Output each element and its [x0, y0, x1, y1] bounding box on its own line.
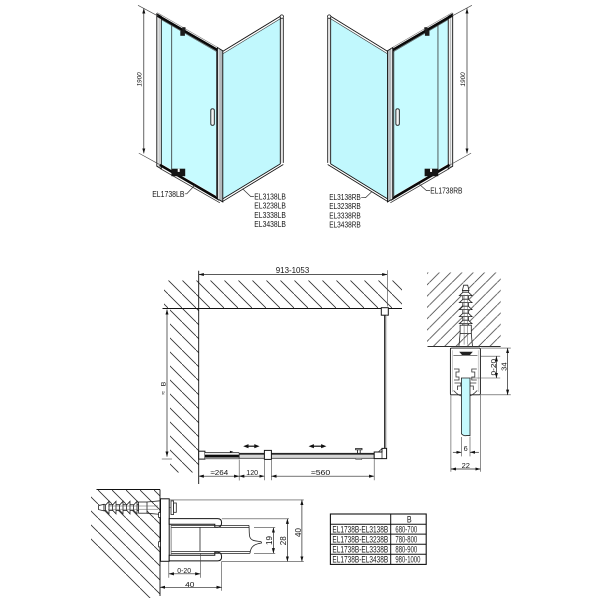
svg-text:40: 40	[294, 528, 303, 537]
svg-text:EL3238LB: EL3238LB	[254, 202, 286, 211]
svg-text:913-1053: 913-1053	[276, 266, 310, 275]
svg-text:≈B: ≈B	[161, 381, 168, 394]
svg-text:980-1000: 980-1000	[395, 554, 420, 565]
svg-text:0-20: 0-20	[177, 566, 191, 575]
svg-text:EL3238RB: EL3238RB	[329, 202, 361, 211]
svg-text:6: 6	[464, 444, 468, 453]
svg-text:40: 40	[185, 580, 194, 589]
svg-text:≈560: ≈560	[311, 468, 330, 477]
svg-text:EL3138RB: EL3138RB	[329, 193, 361, 202]
svg-text:≈264: ≈264	[210, 468, 228, 477]
svg-text:1900: 1900	[136, 72, 143, 86]
svg-text:EL1738B-EL3438B: EL1738B-EL3438B	[332, 554, 388, 565]
svg-text:28: 28	[279, 536, 288, 545]
svg-text:120: 120	[246, 468, 258, 477]
svg-text:EL3438LB: EL3438LB	[254, 220, 286, 229]
svg-text:22: 22	[462, 461, 470, 470]
svg-text:EL1738RB: EL1738RB	[430, 187, 462, 196]
svg-text:EL3138LB: EL3138LB	[254, 192, 286, 201]
svg-text:0-20: 0-20	[489, 359, 498, 376]
svg-text:EL3438RB: EL3438RB	[329, 221, 361, 230]
svg-text:EL3338RB: EL3338RB	[329, 211, 361, 220]
svg-text:19: 19	[265, 536, 274, 545]
svg-text:1900: 1900	[460, 72, 467, 86]
svg-text:EL1738LB: EL1738LB	[152, 190, 184, 199]
svg-text:34: 34	[500, 362, 509, 370]
svg-text:EL3338LB: EL3338LB	[254, 211, 286, 220]
